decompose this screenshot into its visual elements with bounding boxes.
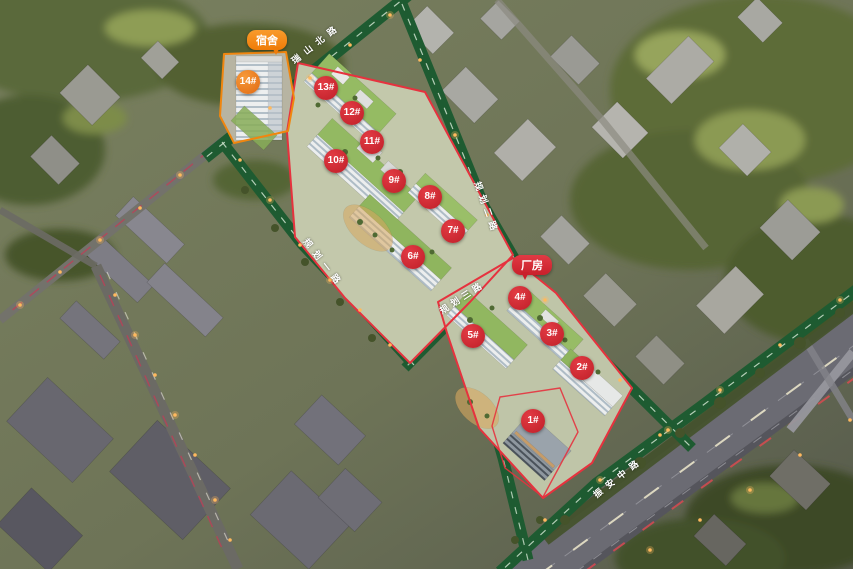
dormitory-label: 宿舍 (247, 30, 287, 50)
building-badge-3: 3# (540, 322, 564, 346)
building-badge-12: 12# (340, 101, 364, 125)
factory-label: 厂房 (512, 255, 552, 275)
building-badge-5: 5# (461, 324, 485, 348)
building-badge-7: 7# (441, 219, 465, 243)
building-badge-1: 1# (521, 409, 545, 433)
building-badge-8: 8# (418, 185, 442, 209)
building-badge-13: 13# (314, 76, 338, 100)
building-badge-2: 2# (570, 356, 594, 380)
building-badge-14: 14# (236, 70, 260, 94)
building-badge-9: 9# (382, 169, 406, 193)
factory-label-pointer (521, 272, 529, 280)
building-badge-11: 11# (360, 130, 384, 154)
aerial-masterplan-rendering: 瑞山北路 规划一路 规划二路 规划三路 振安中路 宿舍 厂房 1# 2# 3# … (0, 0, 853, 569)
building-badge-4: 4# (508, 286, 532, 310)
building-badge-6: 6# (401, 245, 425, 269)
scene-graphic (0, 0, 853, 569)
building-badge-10: 10# (324, 149, 348, 173)
dormitory-label-pointer (272, 47, 280, 55)
